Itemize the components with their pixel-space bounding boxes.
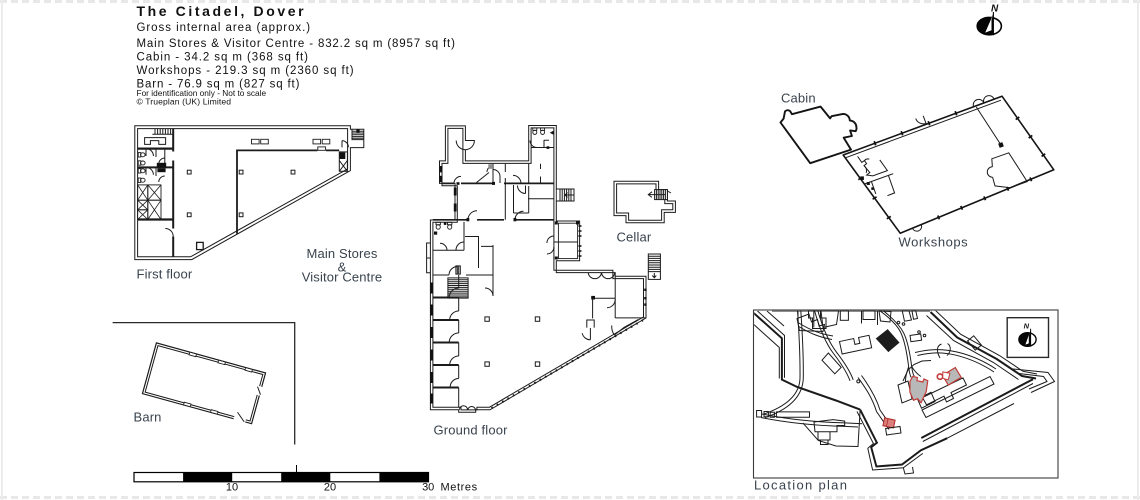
svg-text:Visitor Centre: Visitor Centre bbox=[302, 270, 383, 285]
svg-text:Workshops - 219.3 sq m (2360 s: Workshops - 219.3 sq m (2360 sq ft) bbox=[137, 65, 355, 77]
svg-text:Cellar: Cellar bbox=[617, 230, 652, 245]
svg-text:N: N bbox=[991, 4, 999, 15]
svg-text:20: 20 bbox=[324, 482, 336, 494]
svg-text:Gross internal area (approx.): Gross internal area (approx.) bbox=[137, 22, 312, 34]
svg-text:Cabin - 34.2 sq m (368 sq ft): Cabin - 34.2 sq m (368 sq ft) bbox=[137, 52, 309, 64]
svg-text:Main Stores & Visitor Centre -: Main Stores & Visitor Centre - 832.2 sq … bbox=[137, 38, 456, 50]
svg-text:Location plan: Location plan bbox=[754, 478, 848, 493]
svg-text:Metres: Metres bbox=[441, 482, 478, 494]
svg-text:Barn: Barn bbox=[134, 410, 162, 425]
svg-text:The Citadel, Dover: The Citadel, Dover bbox=[137, 3, 307, 19]
svg-text:Ground floor: Ground floor bbox=[434, 423, 509, 438]
svg-text:First floor: First floor bbox=[137, 267, 193, 282]
svg-text:Workshops: Workshops bbox=[899, 235, 969, 250]
svg-text:© Trueplan (UK) Limited: © Trueplan (UK) Limited bbox=[137, 96, 232, 106]
svg-text:Cabin: Cabin bbox=[781, 91, 816, 106]
svg-text:10: 10 bbox=[226, 482, 238, 494]
svg-text:30: 30 bbox=[422, 482, 434, 494]
svg-text:N: N bbox=[1024, 321, 1030, 330]
